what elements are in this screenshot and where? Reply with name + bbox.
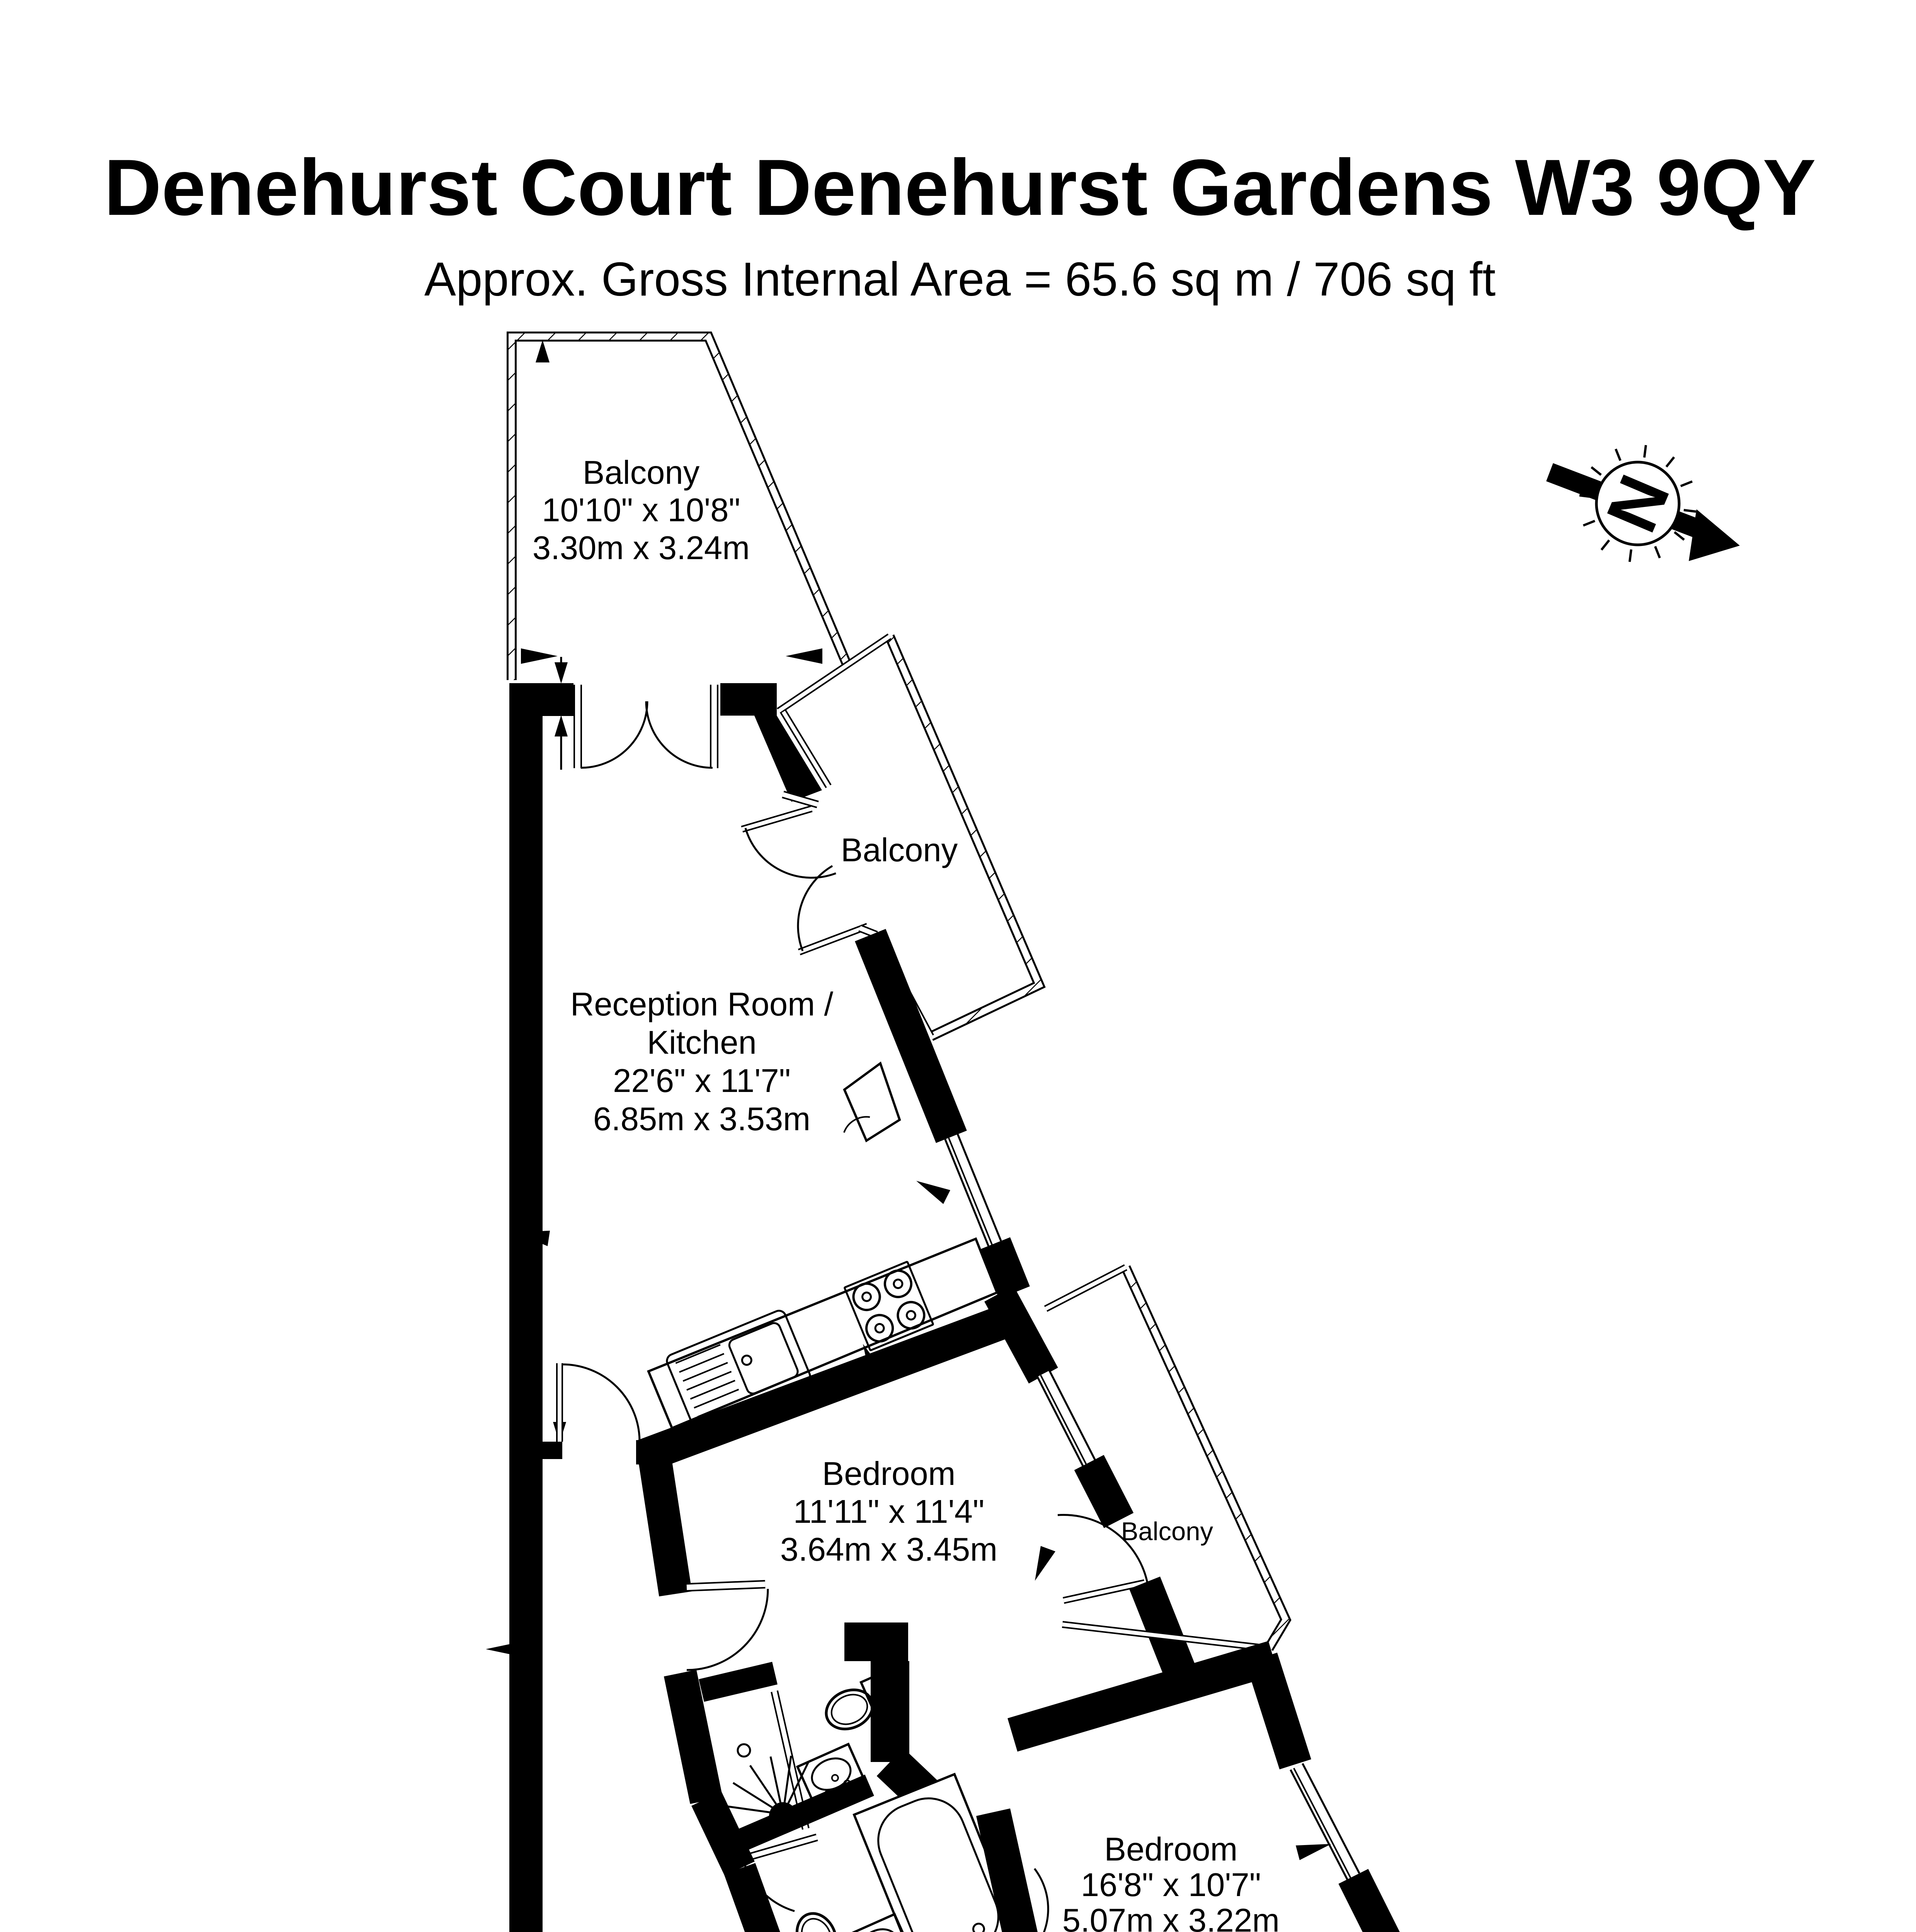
svg-text:Balcony: Balcony <box>1121 1517 1213 1546</box>
svg-text:6.85m x 3.53m: 6.85m x 3.53m <box>593 1101 810 1138</box>
svg-text:Balcony: Balcony <box>841 832 958 869</box>
svg-text:22'6" x 11'7": 22'6" x 11'7" <box>613 1063 791 1099</box>
svg-text:Reception Room /: Reception Room / <box>570 986 834 1023</box>
svg-text:Bedroom: Bedroom <box>1104 1831 1238 1868</box>
svg-text:5.07m x 3.22m: 5.07m x 3.22m <box>1062 1902 1280 1932</box>
svg-text:3.64m x 3.45m: 3.64m x 3.45m <box>780 1531 997 1568</box>
svg-text:11'11" x 11'4": 11'11" x 11'4" <box>793 1493 985 1530</box>
svg-text:Bedroom: Bedroom <box>822 1456 956 1492</box>
svg-text:Approx. Gross Internal Area =: Approx. Gross Internal Area = 65.6 sq m … <box>424 253 1496 306</box>
svg-text:10'10" x 10'8": 10'10" x 10'8" <box>542 492 740 529</box>
svg-text:3.30m x 3.24m: 3.30m x 3.24m <box>533 530 750 566</box>
svg-text:Denehurst Court Denehurst Gard: Denehurst Court Denehurst Gardens W3 9QY <box>104 143 1816 232</box>
svg-text:16'8" x 10'7": 16'8" x 10'7" <box>1081 1867 1261 1903</box>
svg-text:Kitchen: Kitchen <box>647 1024 757 1061</box>
svg-text:Balcony: Balcony <box>583 454 700 491</box>
